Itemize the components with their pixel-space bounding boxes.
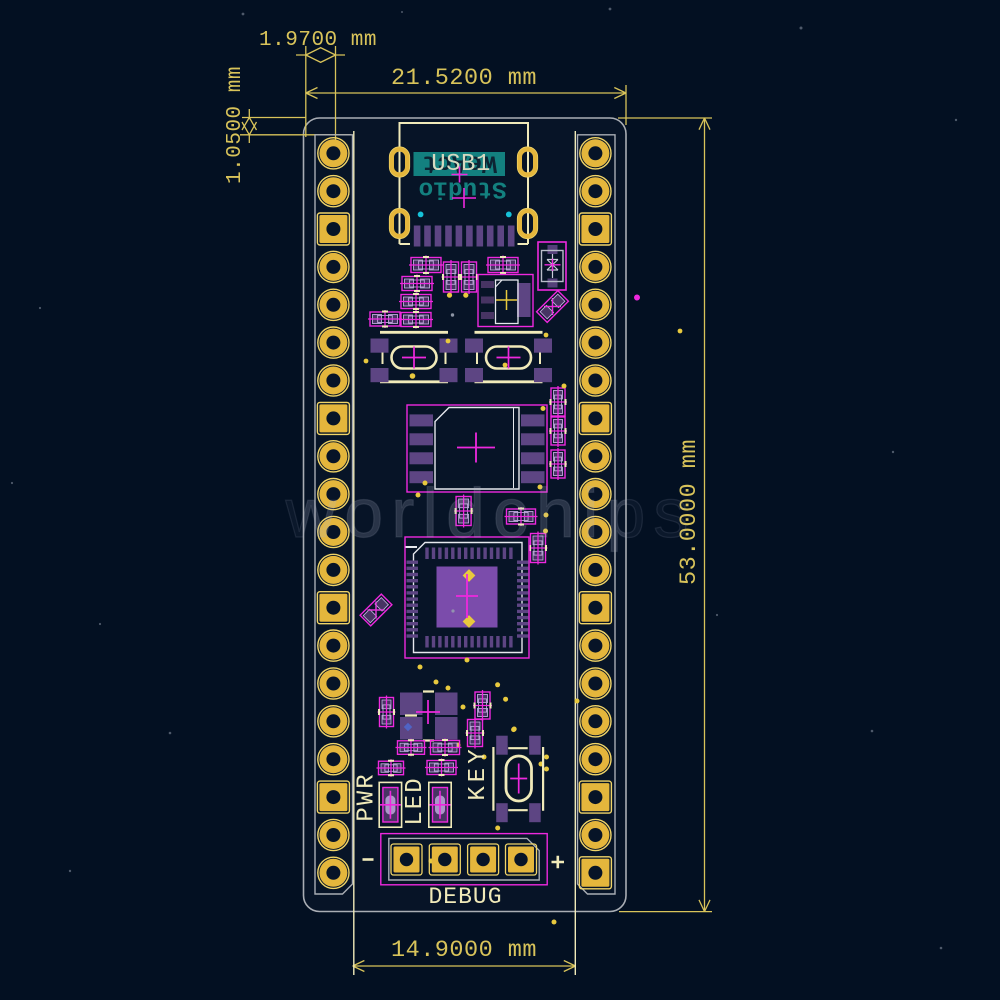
svg-text:1.9700 mm: 1.9700 mm bbox=[259, 29, 377, 52]
svg-text:14.9000 mm: 14.9000 mm bbox=[391, 937, 537, 964]
svg-text:PWR: PWR bbox=[354, 772, 381, 821]
svg-text:1.0500 mm: 1.0500 mm bbox=[224, 66, 247, 184]
svg-text:LED: LED bbox=[402, 776, 429, 825]
svg-text:DEBUG: DEBUG bbox=[428, 884, 502, 910]
svg-text:KEY: KEY bbox=[465, 745, 492, 800]
svg-text:21.5200 mm: 21.5200 mm bbox=[391, 65, 537, 92]
